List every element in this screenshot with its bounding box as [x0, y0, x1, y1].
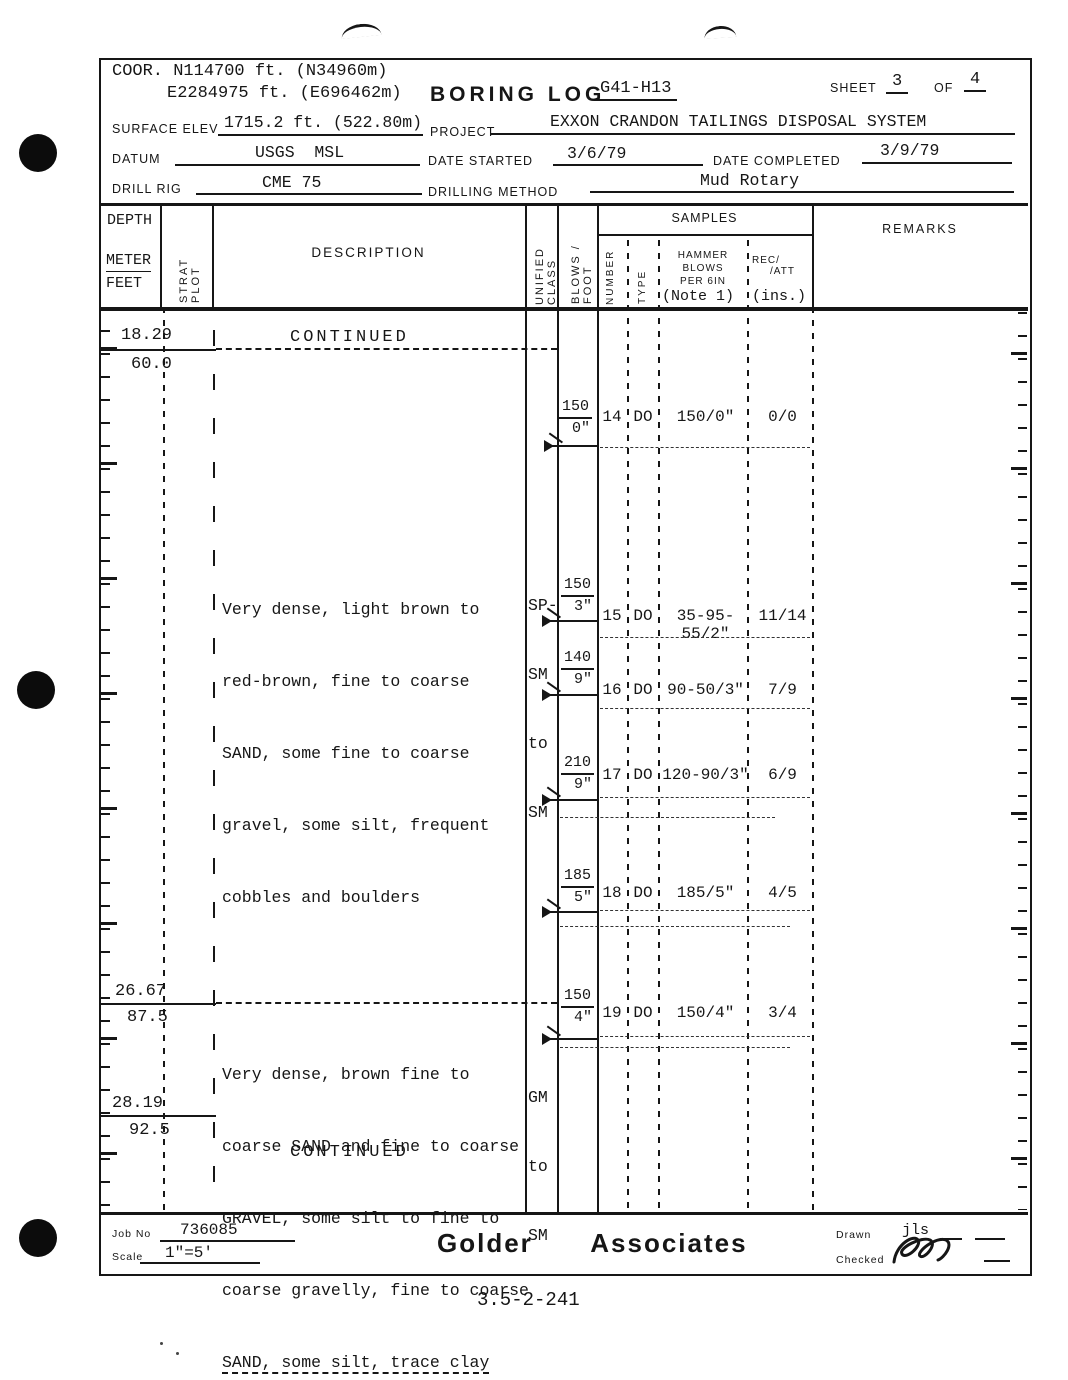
depth-header: DEPTH	[107, 212, 152, 229]
coordinates-line2: E2284975 ft. (E696462m)	[167, 84, 402, 103]
sample-depth-arrow	[544, 1038, 598, 1040]
coordinates-line1: COOR. N114700 ft. (N34960m)	[112, 62, 387, 81]
sample-separator	[560, 1047, 790, 1048]
col-line	[160, 205, 162, 307]
stratum-boundary	[100, 1115, 216, 1117]
col-dash-remarks	[812, 307, 814, 1212]
date-started-value: 3/6/79	[567, 144, 626, 163]
scan-speck	[160, 1342, 163, 1345]
underline	[553, 164, 703, 166]
footer-divider	[99, 1212, 1028, 1215]
depth-meters: 28.19	[112, 1094, 163, 1113]
unified-class-header: UNIFIED CLASS	[534, 210, 558, 305]
col-line-samples-remarks	[812, 205, 814, 307]
boring-log-sheet: COOR. N114700 ft. (N34960m) E2284975 ft.…	[0, 0, 1068, 1380]
sample-row-16: 16 DO 90-50/3" 7/9	[597, 681, 813, 699]
sample-separator	[560, 926, 790, 927]
header-divider	[99, 203, 1028, 206]
scale-label: Scale	[112, 1251, 143, 1263]
sample-row-17: 17 DO 120-90/3" 6/9	[597, 766, 813, 784]
sample-separator	[600, 447, 810, 448]
underline	[218, 134, 423, 136]
datum-label: DATUM	[112, 152, 161, 166]
form-title: BORING LOG	[430, 83, 605, 107]
sample-separator	[600, 708, 810, 709]
date-completed-value: 3/9/79	[880, 141, 939, 160]
underline	[160, 1240, 295, 1242]
sheet-label: SHEET	[830, 81, 877, 95]
stratum-boundary-dashed	[216, 1002, 557, 1004]
rec-att-header-1: REC/	[752, 255, 780, 266]
underline	[862, 162, 1012, 164]
depth-ruler-major-ticks	[101, 307, 117, 1210]
depth-feet: 87.5	[127, 1008, 168, 1027]
remarks-header: REMARKS	[812, 222, 1028, 236]
sample-separator	[560, 817, 775, 818]
surface-elev-value: 1715.2 ft. (522.80m)	[224, 113, 422, 132]
samples-header: SAMPLES	[597, 211, 812, 225]
boring-id: G41-H13	[594, 79, 677, 101]
drill-rig-value: CME 75	[262, 173, 321, 192]
scan-artifact	[704, 25, 737, 39]
blows-marker-17: 210 9"	[561, 753, 594, 794]
sample-depth-arrow	[544, 911, 598, 913]
job-no-value: 736085	[180, 1221, 238, 1239]
job-no-label: Job No	[112, 1228, 151, 1240]
stratum-boundary	[100, 1003, 216, 1005]
hammer-header-2: BLOWS	[660, 263, 746, 274]
hammer-header-1: HAMMER	[660, 250, 746, 261]
col-dash-type-hammer	[658, 240, 660, 1212]
feet-header: FEET	[106, 275, 142, 292]
underline	[975, 1238, 1005, 1240]
checked-label: Checked	[836, 1254, 884, 1266]
depth-meters: 18.29	[121, 326, 172, 345]
surface-elev-label: SURFACE ELEV	[112, 122, 218, 136]
stratum-boundary	[100, 349, 216, 351]
meter-header: METER	[106, 252, 151, 272]
blows-marker-16: 140 9"	[561, 648, 594, 689]
sample-depth-arrow	[544, 799, 598, 801]
samples-underline	[597, 234, 812, 236]
sample-row-14: 14 DO 150/0" 0/0	[597, 408, 813, 426]
sample-separator	[600, 910, 810, 911]
stratum-1-description: Very dense, light brown to red-brown, fi…	[222, 550, 489, 958]
number-header: NUMBER	[605, 245, 616, 305]
blows-marker-19: 150 4"	[561, 986, 594, 1027]
underline	[140, 1262, 260, 1264]
strat-plot-line	[213, 330, 215, 1210]
continued-top: CONTINUED	[290, 328, 409, 347]
depth-feet: 92.5	[129, 1121, 170, 1140]
underline	[984, 1260, 1010, 1262]
drawn-label: Drawn	[836, 1229, 871, 1241]
sample-separator	[600, 797, 810, 798]
drill-rig-label: DRILL RIG	[112, 182, 182, 196]
underline	[196, 193, 422, 195]
strat-plot-header: STRAT PLOT	[178, 218, 202, 303]
rec-att-header-2: /ATT	[770, 266, 795, 277]
blows-foot-header: BLOWS / FOOT	[570, 212, 594, 304]
sample-depth-arrow	[544, 694, 598, 696]
sheet-number: 3	[886, 72, 908, 94]
hammer-header-3: PER 6IN	[660, 276, 746, 287]
sample-row-19: 19 DO 150/4" 3/4	[597, 1004, 813, 1022]
sample-row-18: 18 DO 185/5" 4/5	[597, 884, 813, 902]
col-dash-number-type	[627, 240, 629, 1212]
project-value: EXXON CRANDON TAILINGS DISPOSAL SYSTEM	[550, 112, 926, 131]
datum-value: USGS MSL	[255, 143, 344, 162]
scale-value: 1"=5'	[165, 1244, 213, 1262]
right-ruler-major-ticks	[1011, 312, 1027, 1210]
date-started-label: DATE STARTED	[428, 154, 533, 168]
date-completed-label: DATE COMPLETED	[713, 154, 841, 168]
hole-punch	[17, 671, 55, 709]
blows-marker-15: 150 3"	[561, 575, 594, 616]
hole-punch	[19, 1219, 57, 1257]
blows-marker-18: 185 5"	[561, 866, 594, 907]
col-line-blows-samples	[597, 205, 599, 1212]
sample-separator	[600, 1036, 810, 1037]
blows-marker-14: 150 0"	[559, 397, 592, 438]
type-header: TYPE	[637, 262, 648, 304]
page-reference: 3.5-2-241	[477, 1289, 580, 1311]
hammer-note: (Note 1)	[662, 288, 734, 305]
stratum-2-description: Very dense, brown fine to coarse SAND an…	[222, 1015, 529, 1380]
company-name: Golder Associates	[437, 1228, 748, 1259]
underline	[490, 133, 1015, 135]
description-header: DESCRIPTION	[212, 245, 525, 260]
depth-meters: 26.67	[115, 982, 166, 1001]
of-label: OF	[934, 81, 953, 95]
underline	[175, 164, 420, 166]
scan-speck	[176, 1352, 179, 1355]
sample-depth-arrow	[546, 445, 598, 447]
table-header-bottom	[99, 307, 1028, 311]
drilling-method-label: DRILLING METHOD	[428, 185, 558, 199]
rec-att-units: (ins.)	[752, 288, 806, 305]
col-dash-hammer-rec	[747, 240, 749, 1212]
drilling-method-value: Mud Rotary	[700, 171, 799, 190]
continued-bottom: CONTINUED	[290, 1143, 409, 1162]
sheet-total: 4	[964, 70, 986, 92]
depth-strat-divider	[163, 307, 165, 1212]
scan-artifact	[340, 22, 381, 39]
sample-depth-arrow	[544, 620, 598, 622]
hole-punch	[19, 134, 57, 172]
checked-signature	[888, 1230, 968, 1270]
depth-feet: 60.0	[131, 355, 172, 374]
project-label: PROJECT	[430, 125, 495, 139]
stratum-boundary-dashed	[216, 348, 557, 350]
sample-separator	[600, 637, 810, 638]
underline	[590, 191, 1014, 193]
